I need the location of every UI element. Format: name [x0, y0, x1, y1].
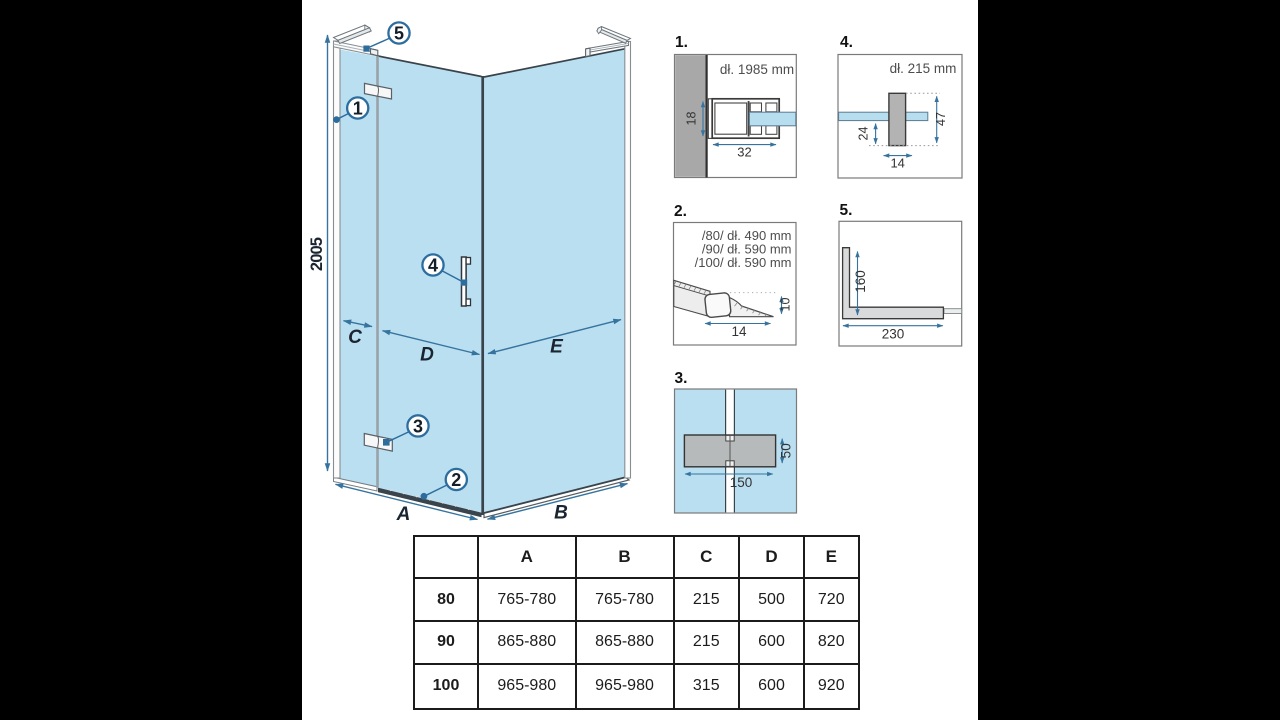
svg-text:3: 3 [413, 416, 423, 436]
svg-text:E: E [550, 337, 564, 358]
svg-text:B: B [554, 503, 568, 524]
svg-text:5.: 5. [840, 202, 853, 219]
svg-text:10: 10 [779, 298, 793, 312]
svg-text:2: 2 [451, 470, 461, 490]
svg-text:47: 47 [934, 112, 948, 126]
svg-text:4: 4 [428, 255, 438, 275]
svg-text:230: 230 [882, 327, 905, 342]
svg-text:50: 50 [779, 443, 794, 458]
svg-text:dł. 1985 mm: dł. 1985 mm [720, 62, 794, 77]
svg-text:4.: 4. [840, 34, 853, 51]
svg-text:A: A [396, 504, 411, 525]
svg-text:3.: 3. [675, 370, 688, 387]
svg-text:C: C [348, 327, 362, 348]
svg-text:160: 160 [853, 270, 868, 293]
svg-text:2005: 2005 [308, 237, 326, 271]
svg-text:/100/ dł. 590 mm: /100/ dł. 590 mm [695, 255, 792, 270]
svg-text:5: 5 [394, 23, 404, 43]
svg-text:24: 24 [857, 127, 871, 141]
svg-text:D: D [420, 345, 434, 366]
svg-text:32: 32 [737, 145, 751, 160]
svg-text:1.: 1. [675, 34, 688, 51]
svg-text:18: 18 [685, 112, 699, 126]
svg-text:2.: 2. [674, 203, 687, 220]
svg-text:14: 14 [890, 156, 904, 171]
svg-text:1: 1 [353, 98, 363, 118]
svg-text:150: 150 [730, 475, 753, 490]
svg-text:dł. 215 mm: dł. 215 mm [890, 61, 957, 76]
svg-text:14: 14 [731, 324, 747, 339]
